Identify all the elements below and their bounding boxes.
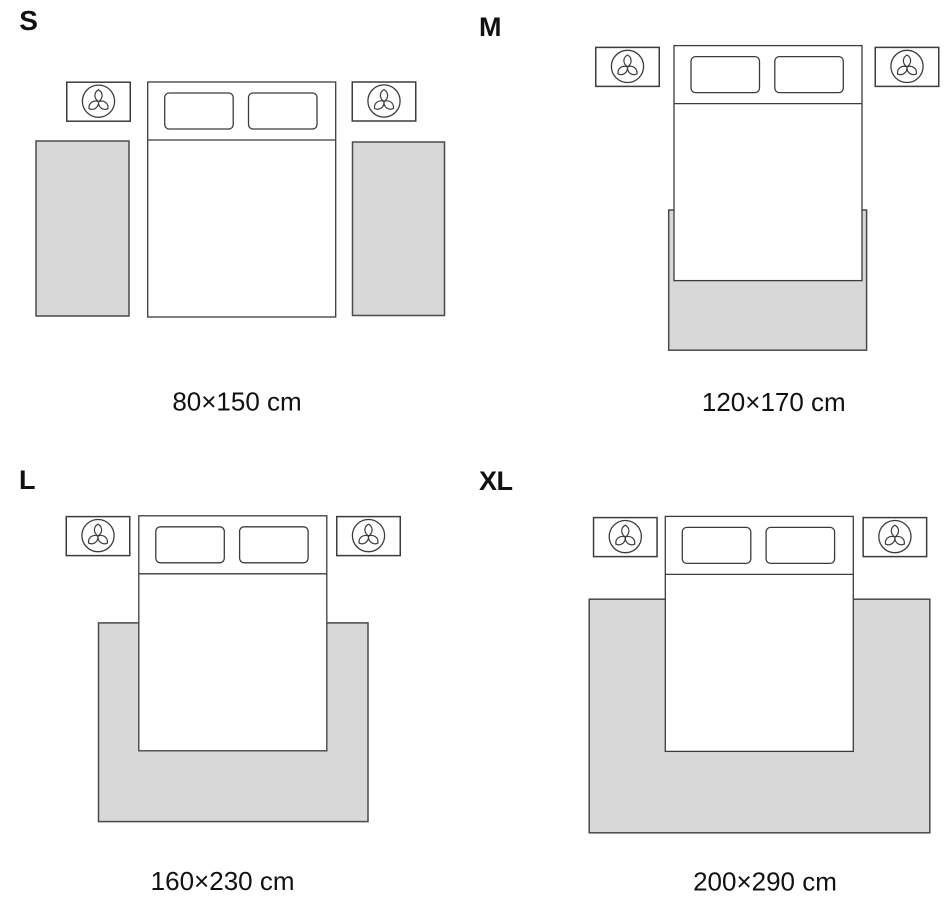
svg-text:L: L xyxy=(19,465,36,495)
svg-text:80×150 cm: 80×150 cm xyxy=(172,387,301,417)
svg-text:XL: XL xyxy=(479,466,513,496)
svg-text:S: S xyxy=(19,5,38,36)
svg-text:M: M xyxy=(479,12,502,42)
svg-text:200×290 cm: 200×290 cm xyxy=(693,866,837,896)
svg-text:120×170 cm: 120×170 cm xyxy=(702,387,846,417)
svg-text:160×230 cm: 160×230 cm xyxy=(151,866,295,896)
